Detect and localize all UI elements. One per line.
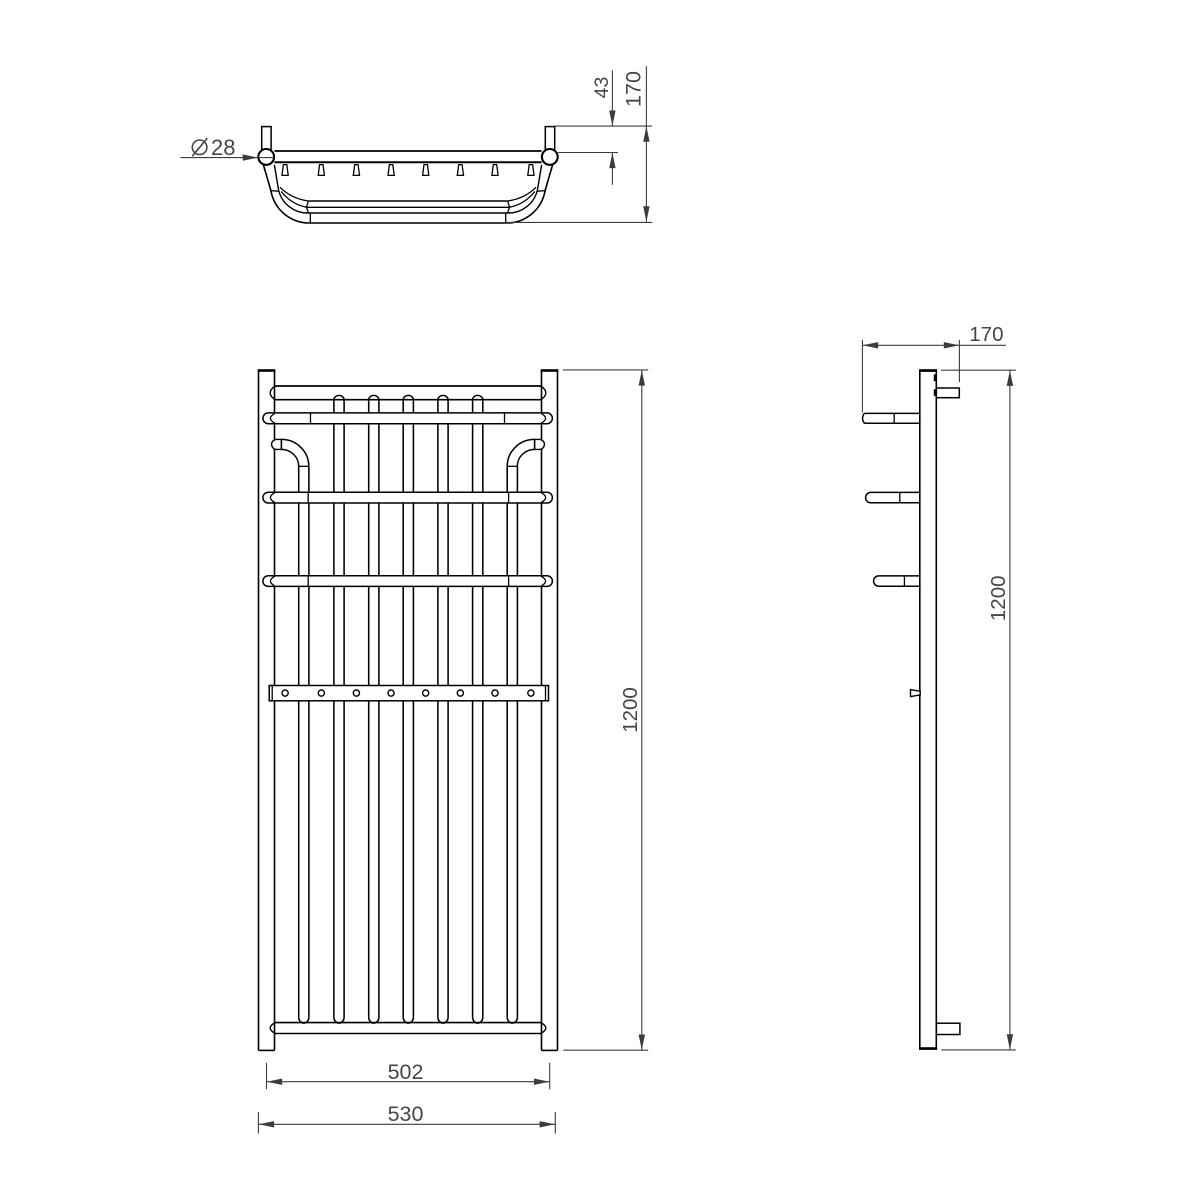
svg-text:1200: 1200 [987, 575, 1010, 621]
svg-text:170: 170 [621, 71, 645, 107]
svg-text:1200: 1200 [619, 687, 642, 733]
svg-text:43: 43 [591, 77, 613, 99]
svg-text:502: 502 [388, 1060, 424, 1084]
svg-text:530: 530 [388, 1102, 424, 1126]
svg-text:28: 28 [211, 135, 235, 160]
svg-text:170: 170 [969, 323, 1003, 346]
